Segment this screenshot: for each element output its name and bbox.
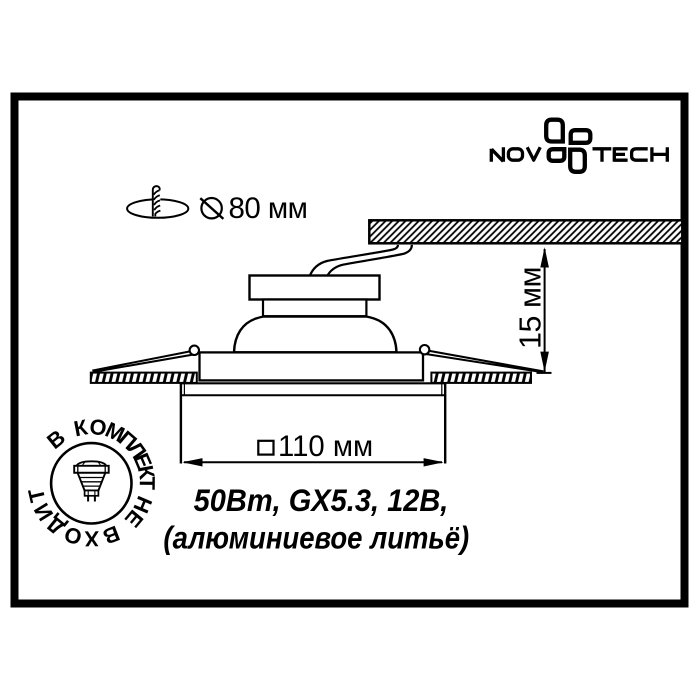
svg-text:Т: Т [135, 476, 160, 490]
svg-text:80 мм: 80 мм [229, 192, 308, 225]
svg-text:15 мм: 15 мм [513, 267, 547, 349]
svg-text:50Вm, GX5.3, 12В,: 50Вm, GX5.3, 12В, [194, 484, 449, 518]
svg-text:(алюмuнuевое лumьё): (алюмuнuевое лumьё) [163, 521, 469, 556]
svg-text:110 мм: 110 мм [278, 430, 373, 463]
svg-text:Х: Х [84, 526, 99, 551]
